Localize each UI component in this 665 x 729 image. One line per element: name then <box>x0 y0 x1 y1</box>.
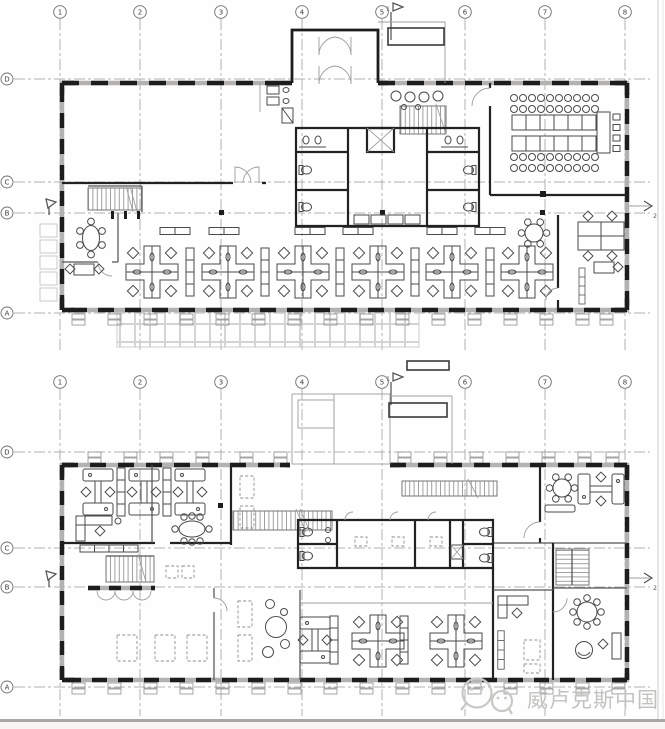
svg-text:3: 3 <box>219 9 223 17</box>
low-table <box>475 228 505 235</box>
svg-text:4: 4 <box>300 9 305 17</box>
cabinet <box>330 616 338 664</box>
meeting-room-left <box>62 213 118 276</box>
offices-top-lower <box>62 465 254 552</box>
cabinet <box>336 248 344 296</box>
round-table <box>546 474 578 502</box>
svg-text:D: D <box>4 449 9 457</box>
workstation <box>578 472 624 506</box>
cabinet <box>261 248 269 296</box>
double-door <box>319 37 351 55</box>
cabinet <box>411 248 419 296</box>
l-desk <box>76 516 121 541</box>
floor-plans-canvas: 1 2 3 4 5 6 7 8 D C B A 1 2 <box>0 0 665 729</box>
interior-walls-upper <box>62 83 627 215</box>
stair-upper-left <box>88 186 142 219</box>
grid-axes-upper: 1 2 3 4 5 6 7 8 D C B A 1 2 <box>1 3 657 352</box>
wc-fixtures <box>299 136 476 212</box>
section-arrow-right: 2 <box>628 201 657 220</box>
cabinet <box>486 248 494 296</box>
showroom-bottom-left <box>88 554 290 680</box>
svg-text:2: 2 <box>653 213 657 220</box>
lounge-chair <box>576 642 593 659</box>
stair-long-upper-run <box>402 479 497 498</box>
display-stand <box>524 664 540 673</box>
workstation <box>173 469 207 515</box>
stair-core-right <box>556 549 589 585</box>
chair-row <box>511 106 599 113</box>
drawing-sheet: 1 2 3 4 5 6 7 8 D C B A 1 2 <box>0 0 665 729</box>
low-table <box>295 228 325 235</box>
svg-text:6: 6 <box>463 9 468 17</box>
desk-cluster <box>126 246 178 298</box>
round-table <box>570 595 605 630</box>
watermark: 威卢克斯中国 <box>461 679 659 715</box>
workstation <box>81 469 115 515</box>
entrance-vestibule-upper <box>292 22 445 84</box>
reception-items <box>267 86 293 123</box>
desk-cluster <box>277 246 329 298</box>
svg-text:8: 8 <box>623 9 627 17</box>
cabinet <box>117 468 125 516</box>
svg-text:5: 5 <box>380 379 384 387</box>
svg-text:1: 1 <box>58 9 62 17</box>
floor-plan-upper: 1 2 3 4 5 6 7 8 D C B A 1 2 <box>1 3 657 352</box>
oval-meeting-table <box>77 218 106 258</box>
cabinet <box>163 468 171 516</box>
stair-upper-hall <box>400 104 446 134</box>
svg-text:D: D <box>4 76 9 84</box>
svg-text:2: 2 <box>653 585 657 592</box>
meeting-room-top-right <box>493 465 627 543</box>
pavement-grid <box>117 311 419 347</box>
display-mat <box>117 635 137 661</box>
oval-meeting-table <box>172 513 212 545</box>
workstation <box>127 469 161 515</box>
section-arrow-right: 2 <box>628 573 657 592</box>
cabinet <box>498 631 504 669</box>
plant-circles <box>263 600 290 658</box>
training-tables <box>512 112 620 153</box>
svg-text:4: 4 <box>300 379 305 387</box>
svg-text:1: 1 <box>58 379 62 387</box>
floor-tiles <box>354 215 420 224</box>
office-room-right <box>546 211 624 310</box>
l-desk <box>498 596 528 618</box>
display-stand <box>524 640 540 660</box>
section-flag: 1 <box>386 373 403 405</box>
display-stand <box>240 476 254 498</box>
side-desk <box>612 633 621 659</box>
workstation <box>298 617 332 663</box>
conference-room-upper <box>511 95 621 172</box>
double-door <box>319 66 351 84</box>
chair-row <box>511 154 599 161</box>
svg-text:C: C <box>5 179 10 187</box>
svg-text:1: 1 <box>386 376 390 383</box>
low-table <box>343 228 373 235</box>
svg-text:A: A <box>5 684 10 692</box>
display-stand <box>238 601 252 627</box>
svg-text:A: A <box>5 310 10 318</box>
section-flag-left <box>46 199 56 215</box>
display-mat <box>155 635 175 661</box>
low-table <box>160 228 190 235</box>
svg-text:6: 6 <box>463 379 468 387</box>
display-mat <box>187 635 207 661</box>
svg-text:7: 7 <box>543 379 547 387</box>
desk-cluster <box>352 246 404 298</box>
svg-text:2: 2 <box>138 379 142 387</box>
canopy-slab <box>388 28 444 45</box>
open-office-bottom-lower <box>298 590 493 680</box>
low-table <box>209 228 239 235</box>
floor-plan-lower: 1 2 3 4 5 6 7 8 D C B A 1 2 <box>1 361 657 716</box>
desk-cluster <box>352 615 404 667</box>
stair-lower-left <box>106 554 154 582</box>
svg-text:5: 5 <box>380 9 384 17</box>
desk-cluster <box>430 615 482 667</box>
planter-row-left <box>40 224 57 301</box>
svg-text:8: 8 <box>623 379 627 387</box>
watermark-text: 威卢克斯中国 <box>527 688 659 712</box>
svg-text:2: 2 <box>138 9 142 17</box>
svg-text:7: 7 <box>543 9 547 17</box>
roof-edge <box>407 361 449 370</box>
toilet-core-lower <box>298 512 493 568</box>
axis-bubble: 1 2 3 4 5 6 7 8 D C B A <box>1 376 631 693</box>
svg-text:3: 3 <box>219 379 223 387</box>
page-frame <box>0 0 665 729</box>
svg-text:B: B <box>5 210 10 218</box>
chair-row <box>511 95 599 102</box>
desk-cluster <box>202 246 254 298</box>
cabinet <box>186 248 194 296</box>
low-table <box>427 228 457 235</box>
sofa <box>545 505 575 512</box>
svg-text:C: C <box>5 545 10 553</box>
canopy-slab <box>389 403 447 417</box>
toilet-core-upper <box>296 128 479 226</box>
desk-cluster <box>426 246 478 298</box>
bench-seat <box>80 545 138 552</box>
svg-text:B: B <box>5 584 10 592</box>
svg-text:1: 1 <box>386 6 390 13</box>
display-stand <box>238 635 252 661</box>
entrance-vestibule-lower <box>292 361 452 464</box>
section-flag-left <box>46 571 56 587</box>
chair-row <box>511 165 599 172</box>
